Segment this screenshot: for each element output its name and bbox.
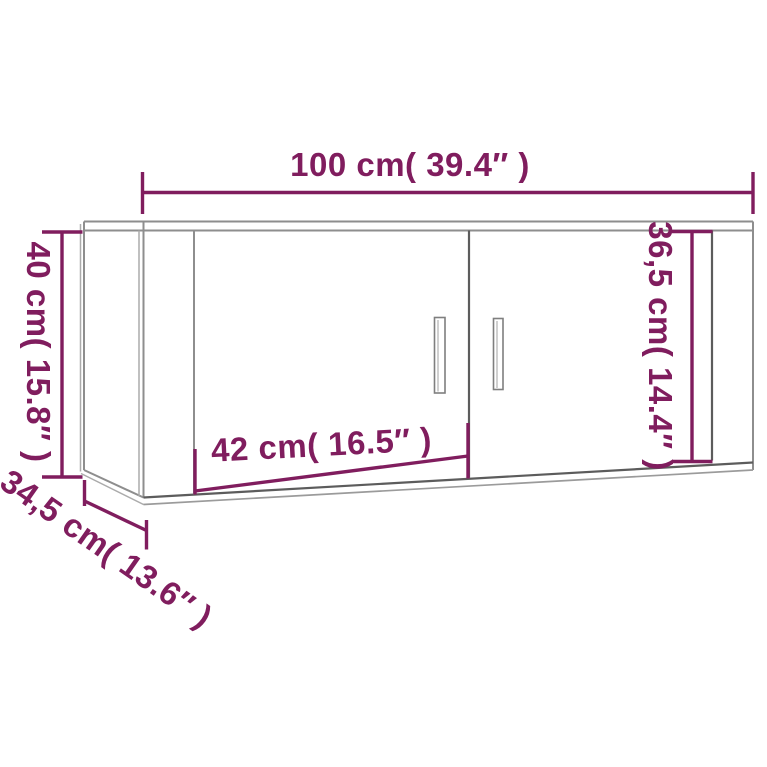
product-dimension-diagram: 100 cm( 39.4″ ) 40 cm( 15.8″ ) 42 cm( 16… xyxy=(0,0,767,767)
cabinet-side-underside-edge xyxy=(81,474,144,505)
door-width-dimension-label: 42 cm( 16.5″ ) xyxy=(210,420,433,469)
height-dimension-label: 40 cm( 15.8″ ) xyxy=(20,242,57,463)
left-door-handle-body xyxy=(435,318,446,394)
width-dimension-label: 100 cm( 39.4″ ) xyxy=(290,146,530,183)
door-height-dimension-label: 36,5 cm( 14.4″ ) xyxy=(642,221,679,470)
dimension-labels: 100 cm( 39.4″ ) 40 cm( 15.8″ ) 42 cm( 16… xyxy=(0,146,679,635)
cabinet-side-bottom-edge xyxy=(84,470,144,498)
right-door-handle-body xyxy=(494,319,504,390)
right-door-handle xyxy=(494,319,504,390)
left-door-handle xyxy=(435,318,446,394)
diagram-canvas: 100 cm( 39.4″ ) 40 cm( 15.8″ ) 42 cm( 16… xyxy=(0,0,767,767)
